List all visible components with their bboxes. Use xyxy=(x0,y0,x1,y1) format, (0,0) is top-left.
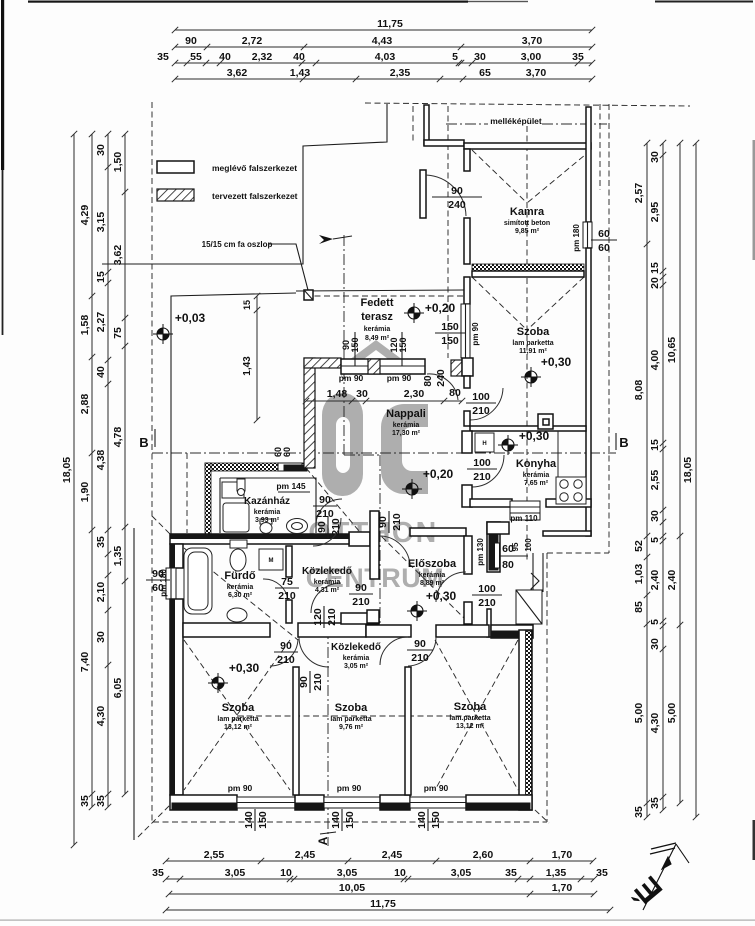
svg-text:3,00: 3,00 xyxy=(521,51,542,63)
svg-text:B: B xyxy=(139,435,148,450)
svg-text:H: H xyxy=(482,441,486,447)
svg-text:Fedett: Fedett xyxy=(361,297,394,309)
svg-text:11,91 m²: 11,91 m² xyxy=(519,348,547,355)
svg-text:kerámia: kerámia xyxy=(314,579,341,586)
svg-text:3,62: 3,62 xyxy=(112,245,124,266)
svg-text:1,35: 1,35 xyxy=(546,867,567,879)
svg-text:10: 10 xyxy=(280,867,292,879)
svg-text:M: M xyxy=(269,558,274,564)
svg-text:75: 75 xyxy=(112,327,124,339)
svg-text:2,72: 2,72 xyxy=(242,35,263,47)
svg-text:3,70: 3,70 xyxy=(526,67,547,79)
svg-text:2,40: 2,40 xyxy=(666,570,678,591)
svg-text:2,32: 2,32 xyxy=(252,51,273,63)
svg-text:kerámia: kerámia xyxy=(254,509,281,516)
svg-text:90: 90 xyxy=(298,676,310,688)
svg-text:kerámia: kerámia xyxy=(419,572,446,579)
svg-text:90: 90 xyxy=(377,516,389,528)
svg-text:Közlekedő: Közlekedő xyxy=(302,566,352,577)
svg-text:kerámia: kerámia xyxy=(364,326,391,333)
svg-text:8,08: 8,08 xyxy=(633,380,645,401)
svg-text:140: 140 xyxy=(330,811,342,829)
svg-text:2,45: 2,45 xyxy=(382,849,403,861)
svg-text:210: 210 xyxy=(473,471,491,483)
svg-text:40: 40 xyxy=(95,366,107,378)
svg-text:9,85 m²: 9,85 m² xyxy=(515,228,540,235)
svg-text:4,30: 4,30 xyxy=(95,706,107,727)
svg-text:210: 210 xyxy=(478,597,496,609)
svg-text:2,60: 2,60 xyxy=(473,849,494,861)
svg-text:terasz: terasz xyxy=(361,311,393,323)
svg-text:2,88: 2,88 xyxy=(79,394,91,415)
svg-text:210: 210 xyxy=(352,596,370,608)
svg-text:210: 210 xyxy=(472,405,490,417)
svg-text:35: 35 xyxy=(649,797,661,809)
svg-text:+0,03: +0,03 xyxy=(175,311,206,325)
svg-text:Szoba: Szoba xyxy=(454,701,487,713)
svg-text:lam.parketta: lam.parketta xyxy=(449,715,490,722)
svg-text:1,48: 1,48 xyxy=(327,388,348,400)
svg-text:210: 210 xyxy=(277,654,295,666)
svg-text:kerámia: kerámia xyxy=(523,472,550,479)
svg-text:100: 100 xyxy=(472,391,490,403)
svg-text:35: 35 xyxy=(95,536,107,548)
svg-text:pm 90: pm 90 xyxy=(387,373,412,383)
svg-text:1,43: 1,43 xyxy=(290,67,311,79)
svg-text:90: 90 xyxy=(414,638,426,650)
svg-text:Szoba: Szoba xyxy=(222,702,255,714)
svg-text:30: 30 xyxy=(95,631,107,643)
svg-text:pm 90: pm 90 xyxy=(337,783,362,793)
svg-text:90: 90 xyxy=(355,582,367,594)
svg-text:13,12 m²: 13,12 m² xyxy=(456,723,485,730)
svg-text:1,03: 1,03 xyxy=(633,564,645,585)
svg-text:90: 90 xyxy=(185,35,197,47)
svg-text:17,30 m²: 17,30 m² xyxy=(392,430,421,437)
svg-text:Fürdő: Fürdő xyxy=(224,570,255,582)
svg-text:20: 20 xyxy=(649,277,661,289)
svg-text:pm 90: pm 90 xyxy=(471,322,480,346)
svg-text:meglévő falszerkezet: meglévő falszerkezet xyxy=(212,163,297,173)
svg-text:2,40: 2,40 xyxy=(649,570,661,591)
svg-text:+0,20: +0,20 xyxy=(423,467,454,481)
svg-text:2,95: 2,95 xyxy=(649,202,661,223)
svg-text:100: 100 xyxy=(473,457,491,469)
svg-text:35: 35 xyxy=(572,51,584,63)
svg-text:pm 90: pm 90 xyxy=(424,783,449,793)
svg-text:85: 85 xyxy=(633,601,645,613)
svg-text:6,05: 6,05 xyxy=(112,678,124,699)
svg-text:210: 210 xyxy=(411,652,429,664)
svg-text:2,30: 2,30 xyxy=(404,388,425,400)
svg-text:3,93 m²: 3,93 m² xyxy=(255,517,280,524)
svg-text:30: 30 xyxy=(356,388,368,400)
svg-text:Szoba: Szoba xyxy=(517,326,550,338)
svg-text:+0,30: +0,30 xyxy=(541,355,572,369)
svg-text:100: 100 xyxy=(478,583,496,595)
svg-text:Nappali: Nappali xyxy=(386,408,426,420)
svg-text:210: 210 xyxy=(326,608,338,626)
svg-text:2,35: 2,35 xyxy=(390,67,411,79)
svg-text:3,05: 3,05 xyxy=(337,867,358,879)
svg-text:pm 180: pm 180 xyxy=(159,569,168,597)
svg-text:pm 130: pm 130 xyxy=(476,538,485,566)
svg-text:6,30 m²: 6,30 m² xyxy=(228,592,253,599)
svg-text:2,27: 2,27 xyxy=(95,312,107,333)
svg-text:4,31 m²: 4,31 m² xyxy=(315,587,340,594)
svg-text:+0,30: +0,30 xyxy=(519,429,550,443)
svg-text:150: 150 xyxy=(441,335,459,347)
svg-text:35: 35 xyxy=(596,867,608,879)
svg-text:35: 35 xyxy=(79,795,91,807)
svg-text:90: 90 xyxy=(280,640,292,652)
svg-text:3,05 m²: 3,05 m² xyxy=(344,663,369,670)
svg-text:1,35: 1,35 xyxy=(112,546,124,567)
svg-text:30: 30 xyxy=(649,510,661,522)
svg-text:kerámia: kerámia xyxy=(393,422,420,429)
svg-text:pm 145: pm 145 xyxy=(276,481,306,491)
svg-text:pm 90: pm 90 xyxy=(228,783,253,793)
svg-text:1,50: 1,50 xyxy=(112,152,124,173)
svg-text:kerámia: kerámia xyxy=(227,584,254,591)
svg-text:2,55: 2,55 xyxy=(649,470,661,491)
svg-text:15: 15 xyxy=(242,300,252,310)
svg-text:1,43: 1,43 xyxy=(242,356,253,376)
svg-text:7,40: 7,40 xyxy=(79,652,91,673)
svg-text:+0,30: +0,30 xyxy=(426,589,457,603)
svg-text:Szoba: Szoba xyxy=(335,702,368,714)
svg-text:30: 30 xyxy=(649,151,661,163)
svg-text:4,29: 4,29 xyxy=(79,205,91,226)
svg-text:3,62: 3,62 xyxy=(227,67,248,79)
svg-text:240: 240 xyxy=(435,369,447,387)
svg-text:9,76 m²: 9,76 m² xyxy=(339,724,364,731)
svg-text:55: 55 xyxy=(190,51,202,63)
svg-text:210: 210 xyxy=(391,513,403,531)
svg-text:2,55: 2,55 xyxy=(204,849,225,861)
svg-text:150: 150 xyxy=(441,321,459,333)
svg-text:5,00: 5,00 xyxy=(633,703,645,724)
svg-text:5: 5 xyxy=(649,537,661,543)
svg-text:11,75: 11,75 xyxy=(377,18,403,30)
svg-text:2,45: 2,45 xyxy=(295,849,316,861)
svg-text:150: 150 xyxy=(398,337,408,352)
svg-text:90: 90 xyxy=(316,521,328,533)
svg-text:+0,30: +0,30 xyxy=(229,661,260,675)
svg-text:150: 150 xyxy=(350,337,360,352)
svg-text:3,15: 3,15 xyxy=(95,212,107,233)
svg-text:5,00: 5,00 xyxy=(666,703,678,724)
svg-text:30: 30 xyxy=(95,144,107,156)
svg-text:Konyha: Konyha xyxy=(516,458,557,470)
svg-text:8,49 m²: 8,49 m² xyxy=(365,335,390,342)
svg-text:35: 35 xyxy=(505,867,517,879)
svg-text:kerámia: kerámia xyxy=(343,655,370,662)
svg-text:Kamra: Kamra xyxy=(510,206,545,218)
svg-text:210: 210 xyxy=(312,673,324,691)
svg-text:210: 210 xyxy=(316,508,334,520)
svg-text:60: 60 xyxy=(598,242,610,254)
svg-text:+0,20: +0,20 xyxy=(425,301,456,315)
svg-text:1,70: 1,70 xyxy=(552,882,573,894)
svg-text:pm 90: pm 90 xyxy=(339,373,364,383)
svg-text:simított beton: simított beton xyxy=(504,220,550,227)
svg-text:Kazánház: Kazánház xyxy=(244,496,290,507)
svg-text:melléképület: melléképület xyxy=(490,116,542,126)
svg-text:150: 150 xyxy=(430,811,442,829)
svg-text:Közlekedő: Közlekedő xyxy=(331,642,381,653)
svg-text:18,05: 18,05 xyxy=(682,457,694,483)
svg-text:65: 65 xyxy=(479,67,491,79)
svg-text:pm 180: pm 180 xyxy=(572,224,581,252)
svg-text:120: 120 xyxy=(312,608,324,626)
svg-text:30: 30 xyxy=(474,51,486,63)
svg-text:15: 15 xyxy=(649,262,661,274)
svg-text:210: 210 xyxy=(278,590,296,602)
svg-text:30: 30 xyxy=(649,638,661,650)
svg-text:4,38: 4,38 xyxy=(95,450,107,471)
svg-text:pm 110: pm 110 xyxy=(510,514,538,523)
svg-text:75: 75 xyxy=(281,576,293,588)
svg-text:lam parketta: lam parketta xyxy=(217,716,258,723)
svg-text:210: 210 xyxy=(330,518,342,536)
svg-text:1,58: 1,58 xyxy=(79,315,91,336)
svg-text:tervezett falszerkezet: tervezett falszerkezet xyxy=(212,191,298,201)
svg-text:240: 240 xyxy=(448,199,466,211)
svg-text:80: 80 xyxy=(502,559,514,571)
svg-text:35: 35 xyxy=(633,806,645,818)
svg-text:2,57: 2,57 xyxy=(633,183,645,204)
svg-text:Előszoba: Előszoba xyxy=(408,558,457,570)
svg-text:1,70: 1,70 xyxy=(552,849,573,861)
svg-text:10,65: 10,65 xyxy=(666,337,678,363)
svg-text:52: 52 xyxy=(633,540,645,552)
svg-text:3,70: 3,70 xyxy=(522,35,543,47)
svg-text:60: 60 xyxy=(282,447,292,457)
svg-text:lam parketta: lam parketta xyxy=(330,716,371,723)
svg-text:90: 90 xyxy=(451,185,463,197)
svg-text:4,30: 4,30 xyxy=(649,713,661,734)
svg-text:4,78: 4,78 xyxy=(112,427,124,448)
svg-text:7,65 m²: 7,65 m² xyxy=(524,480,549,487)
svg-text:40: 40 xyxy=(293,51,305,63)
svg-text:90: 90 xyxy=(319,494,331,506)
svg-text:10: 10 xyxy=(394,867,406,879)
svg-text:150: 150 xyxy=(257,811,269,829)
svg-text:140: 140 xyxy=(243,811,255,829)
svg-text:80: 80 xyxy=(449,387,461,399)
svg-text:13,12 m²: 13,12 m² xyxy=(224,724,253,731)
svg-text:150: 150 xyxy=(344,811,356,829)
svg-text:18,05: 18,05 xyxy=(61,457,73,483)
svg-text:11,75: 11,75 xyxy=(370,898,396,910)
svg-text:10,05: 10,05 xyxy=(339,882,365,894)
svg-text:140: 140 xyxy=(416,811,428,829)
svg-text:3,05: 3,05 xyxy=(451,867,472,879)
svg-text:4,43: 4,43 xyxy=(372,35,393,47)
svg-text:2,10: 2,10 xyxy=(95,582,107,603)
svg-text:60: 60 xyxy=(598,228,610,240)
svg-text:80: 80 xyxy=(423,375,434,387)
svg-text:A: A xyxy=(316,836,330,845)
svg-text:15: 15 xyxy=(649,439,661,451)
svg-text:1,90: 1,90 xyxy=(79,482,91,503)
svg-text:15: 15 xyxy=(95,271,107,283)
svg-text:lam parketta: lam parketta xyxy=(512,340,553,347)
svg-text:35: 35 xyxy=(157,51,169,63)
svg-text:5: 5 xyxy=(649,619,661,625)
svg-text:35: 35 xyxy=(152,867,164,879)
svg-text:4,00: 4,00 xyxy=(649,350,661,371)
svg-text:95: 95 xyxy=(511,542,520,551)
svg-text:3,05: 3,05 xyxy=(225,867,246,879)
svg-text:15/15 cm fa oszlop: 15/15 cm fa oszlop xyxy=(202,240,273,249)
svg-text:100: 100 xyxy=(524,538,533,552)
svg-text:35: 35 xyxy=(95,795,107,807)
svg-text:B: B xyxy=(619,435,628,450)
svg-text:8,89 m²: 8,89 m² xyxy=(420,580,445,587)
svg-text:5: 5 xyxy=(452,51,458,63)
svg-text:40: 40 xyxy=(219,51,231,63)
svg-text:4,03: 4,03 xyxy=(375,51,396,63)
